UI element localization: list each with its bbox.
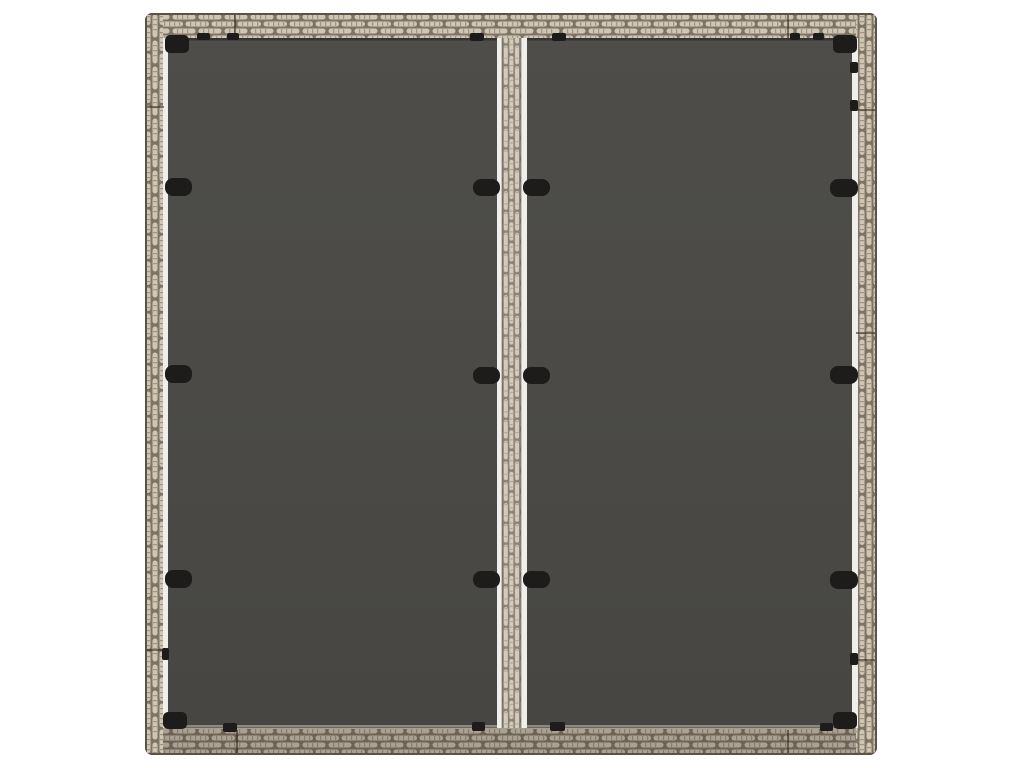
retainer-tab xyxy=(850,653,858,665)
frame-left xyxy=(147,15,163,753)
divider-trim-left xyxy=(497,38,502,728)
divider-highlight xyxy=(502,38,521,728)
retainer-tab xyxy=(790,33,800,40)
glass-clip xyxy=(165,365,192,383)
corner-bracket xyxy=(165,35,189,53)
frame-seam xyxy=(856,332,875,334)
corner-bracket xyxy=(833,712,857,729)
retainer-tab xyxy=(223,723,237,732)
frame-seam xyxy=(787,730,789,753)
divider-edge-line-right xyxy=(521,38,522,728)
frame-seam xyxy=(787,15,789,38)
retainer-tab xyxy=(550,722,565,731)
glass-panel-right xyxy=(527,38,852,728)
corner-bracket xyxy=(163,712,187,729)
retainer-tab xyxy=(813,33,824,40)
glass-clip xyxy=(523,179,550,196)
divider-edge-line-left xyxy=(502,38,503,728)
glass-clip xyxy=(523,571,550,588)
trim-left xyxy=(163,38,168,728)
frame-seam xyxy=(147,106,164,108)
retainer-tab xyxy=(162,648,169,660)
glass-clip xyxy=(830,571,858,589)
frame-bottom-shade xyxy=(147,729,875,753)
frame-seam xyxy=(147,649,164,651)
glass-clip xyxy=(473,367,500,384)
glass-clip xyxy=(473,571,500,588)
glass-clip xyxy=(165,178,192,196)
glass-clip xyxy=(473,179,500,196)
retainer-tab xyxy=(850,100,858,111)
frame-seam xyxy=(856,109,875,111)
product-photo xyxy=(145,13,877,755)
product-photo-box xyxy=(145,13,877,755)
frame-seam xyxy=(856,659,875,661)
frame-seam xyxy=(236,730,238,753)
retainer-tab xyxy=(227,33,239,40)
page-background xyxy=(0,0,1024,768)
glass-clip xyxy=(165,570,192,588)
corner-bracket xyxy=(833,35,857,53)
glass-clip xyxy=(830,179,858,197)
divider-trim-right xyxy=(521,38,527,728)
retainer-tab xyxy=(552,33,566,41)
glass-panel-left xyxy=(168,38,497,728)
frame-top xyxy=(147,15,875,38)
glass-clip xyxy=(523,367,550,384)
retainer-tab xyxy=(472,722,485,731)
glass-clip xyxy=(830,366,858,384)
retainer-tab xyxy=(820,723,833,731)
retainer-tab xyxy=(850,62,858,73)
retainer-tab xyxy=(470,33,484,41)
retainer-tab xyxy=(197,33,210,40)
frame-right xyxy=(856,15,875,753)
